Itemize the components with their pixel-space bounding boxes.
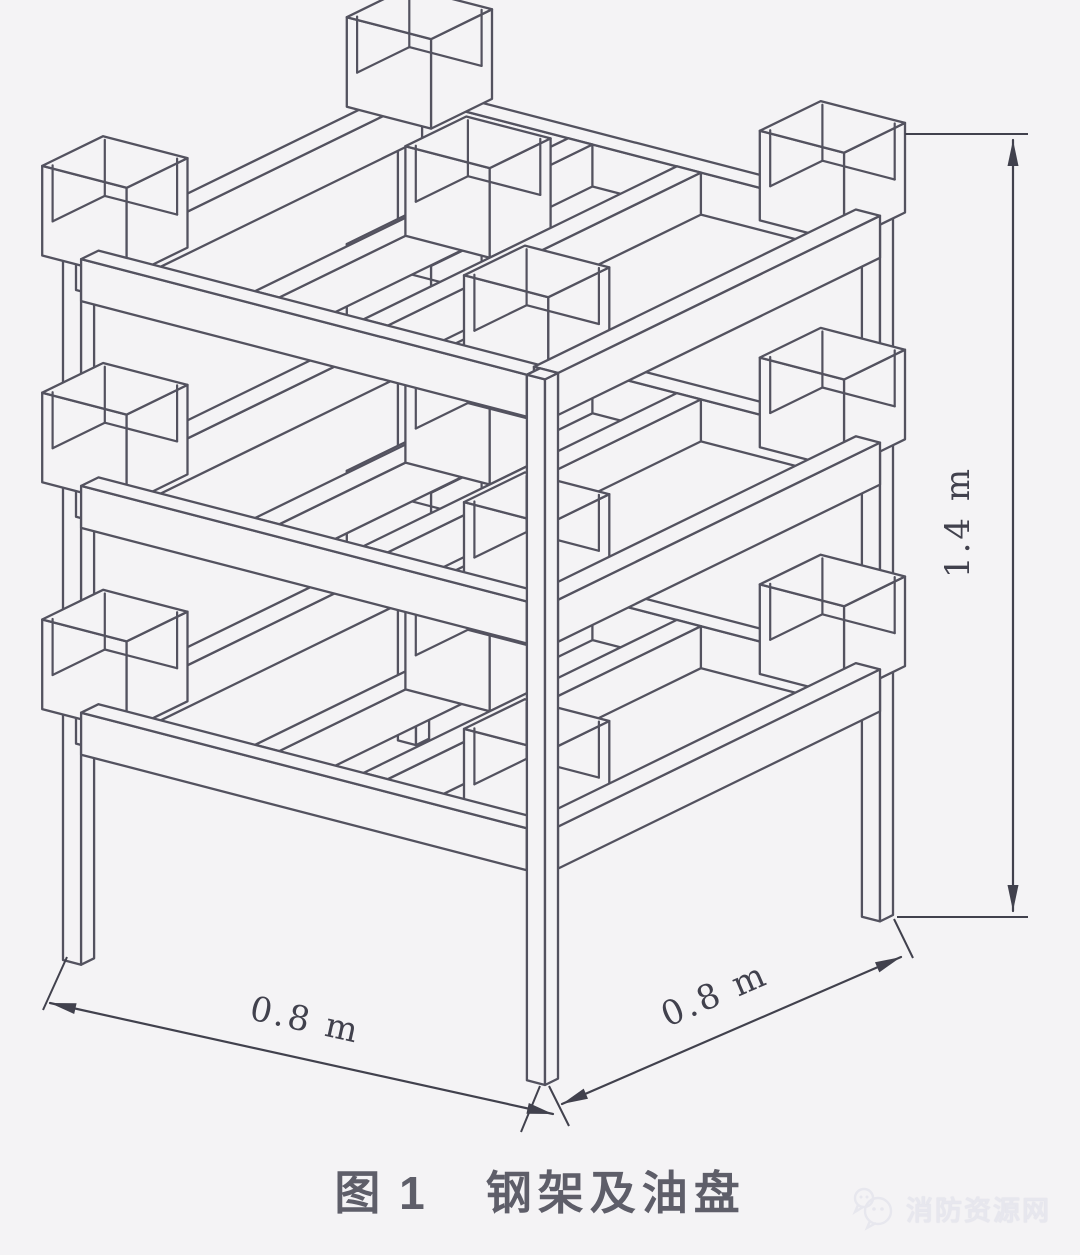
dimension-arrowhead bbox=[50, 1003, 77, 1014]
dimension-label-height: 1.4 m bbox=[938, 466, 978, 578]
dimension-label-base-right: 0.8 m bbox=[655, 954, 774, 1035]
post-right bbox=[880, 209, 893, 921]
post-front bbox=[545, 373, 558, 1085]
post-front bbox=[527, 375, 545, 1085]
dimension-arrowhead bbox=[1008, 140, 1019, 166]
chat-bubbles-icon bbox=[851, 1185, 899, 1231]
steel-frame-and-pans bbox=[42, 0, 905, 1085]
dimension-arrowhead bbox=[1008, 885, 1019, 911]
dimension-label-base-left: 0.8 m bbox=[246, 989, 364, 1052]
extension-tick bbox=[43, 957, 67, 1010]
watermark-text: 消防资源网 bbox=[906, 1189, 1051, 1228]
dimension-arrowhead bbox=[526, 1103, 553, 1114]
watermark: 消防资源网 bbox=[851, 1183, 1076, 1233]
extension-tick bbox=[894, 919, 913, 958]
extension-tick bbox=[549, 1086, 569, 1126]
dimension-arrowhead bbox=[875, 957, 901, 972]
dimension-arrowhead bbox=[562, 1089, 588, 1104]
figure-number: 图 1 bbox=[334, 1167, 427, 1219]
figure-title: 钢架及油盘 bbox=[486, 1167, 746, 1219]
figure-drawing: 0.8 m 0.8 m 1.4 m bbox=[0, 0, 1080, 1255]
scanned-figure-page: 0.8 m 0.8 m 1.4 m 图 1钢架及油盘 消防资源网 bbox=[0, 0, 1080, 1255]
